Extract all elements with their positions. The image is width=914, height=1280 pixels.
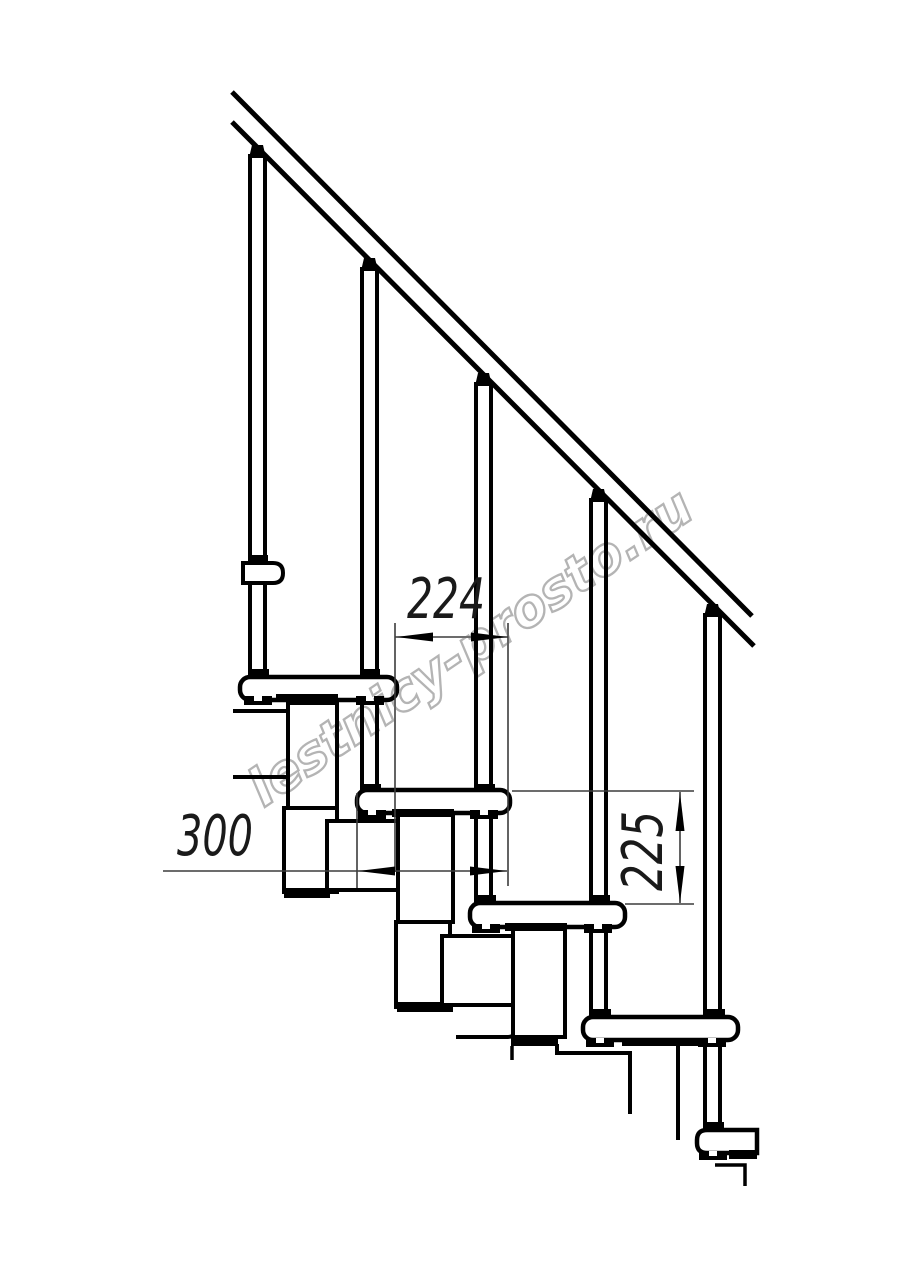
arrow-down-icon xyxy=(676,866,685,903)
baluster-collar xyxy=(591,1009,611,1017)
module-box-2-lower-edge xyxy=(456,1008,518,1037)
drawing-canvas: 224 300 225 lestnicy-prosto.ru xyxy=(0,0,914,1280)
module-box-2 xyxy=(442,936,518,1005)
baluster-1 xyxy=(250,156,265,677)
tread-shadow-band xyxy=(729,1150,757,1159)
watermark-text: lestnicy-prosto.ru xyxy=(237,477,704,819)
module-plate-2 xyxy=(398,814,453,922)
tread-depth-dimension-label: 300 xyxy=(177,804,253,869)
baluster-collar xyxy=(704,1122,724,1130)
module-box-3-partial xyxy=(557,1044,630,1114)
module-box-1 xyxy=(327,821,405,890)
arrow-up-icon xyxy=(676,793,685,831)
wall-bracket xyxy=(243,563,283,583)
baluster-collar xyxy=(475,784,495,792)
baluster-collar xyxy=(476,895,496,903)
floor-step-line xyxy=(715,1165,745,1186)
baluster-collar xyxy=(361,784,381,792)
tread-shadow-band xyxy=(505,923,567,931)
tread-shadow-band xyxy=(276,694,338,702)
riser-dimension-label: 225 xyxy=(611,811,676,891)
module-plate-3 xyxy=(513,925,565,1037)
baluster-collar xyxy=(705,1009,725,1017)
tread-shadow-band xyxy=(622,1038,698,1046)
module-foot-bar-1 xyxy=(284,888,330,898)
baluster-collar xyxy=(590,895,610,903)
tread-4 xyxy=(583,1017,738,1040)
baluster-5 xyxy=(705,615,720,1130)
module-foot-bar-3 xyxy=(511,1036,558,1046)
tread-shadow-band xyxy=(392,809,454,817)
baluster-collar xyxy=(249,669,269,677)
tread-5-floor xyxy=(697,1130,757,1153)
baluster-collar xyxy=(250,555,268,563)
staircase-technical-drawing: 224 300 225 lestnicy-prosto.ru xyxy=(0,0,914,1280)
